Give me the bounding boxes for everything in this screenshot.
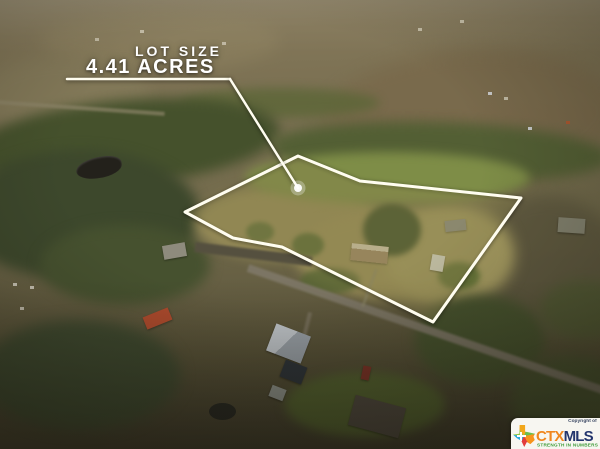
- tree-cluster: [40, 225, 210, 305]
- lot-shed: [444, 219, 466, 232]
- brand-mls: MLS: [564, 429, 593, 444]
- tree-cluster: [438, 262, 480, 290]
- plus-icon: [517, 432, 526, 441]
- tree-cluster: [292, 233, 324, 257]
- house-speck: [504, 97, 508, 100]
- house-speck: [95, 38, 99, 41]
- ctxmls-watermark: Copyright of CTXMLS STRENGTH IN NUMBERS: [511, 418, 600, 449]
- house-speck: [418, 28, 422, 31]
- shed: [268, 385, 286, 402]
- shed: [558, 217, 586, 234]
- tree-cluster: [0, 320, 180, 430]
- house-speck: [528, 127, 532, 130]
- tree-cluster: [246, 222, 274, 242]
- copyright-text: Copyright of: [568, 419, 597, 424]
- tree-cluster: [245, 152, 530, 204]
- house-speck: [566, 121, 570, 124]
- vehicle-speck: [20, 307, 24, 310]
- vehicle-speck: [30, 286, 34, 289]
- house-speck: [140, 30, 144, 33]
- vehicle-speck: [13, 283, 17, 286]
- aerial-photo-stage: LOT SIZE 4.41 ACRES Copyright of CTXMLS …: [0, 0, 600, 449]
- lot-size-value: 4.41 ACRES: [86, 57, 215, 77]
- building-dark-roof: [280, 359, 308, 384]
- house-red-roof: [143, 307, 173, 329]
- brand-ctx: CTX: [536, 429, 564, 444]
- pond: [209, 403, 236, 420]
- texas-mosaic-icon: [513, 425, 535, 447]
- house-speck: [222, 42, 226, 45]
- tagline: STRENGTH IN NUMBERS: [537, 443, 598, 448]
- house-speck: [460, 20, 464, 23]
- lot-trailer: [430, 254, 446, 272]
- house-speck: [488, 92, 492, 95]
